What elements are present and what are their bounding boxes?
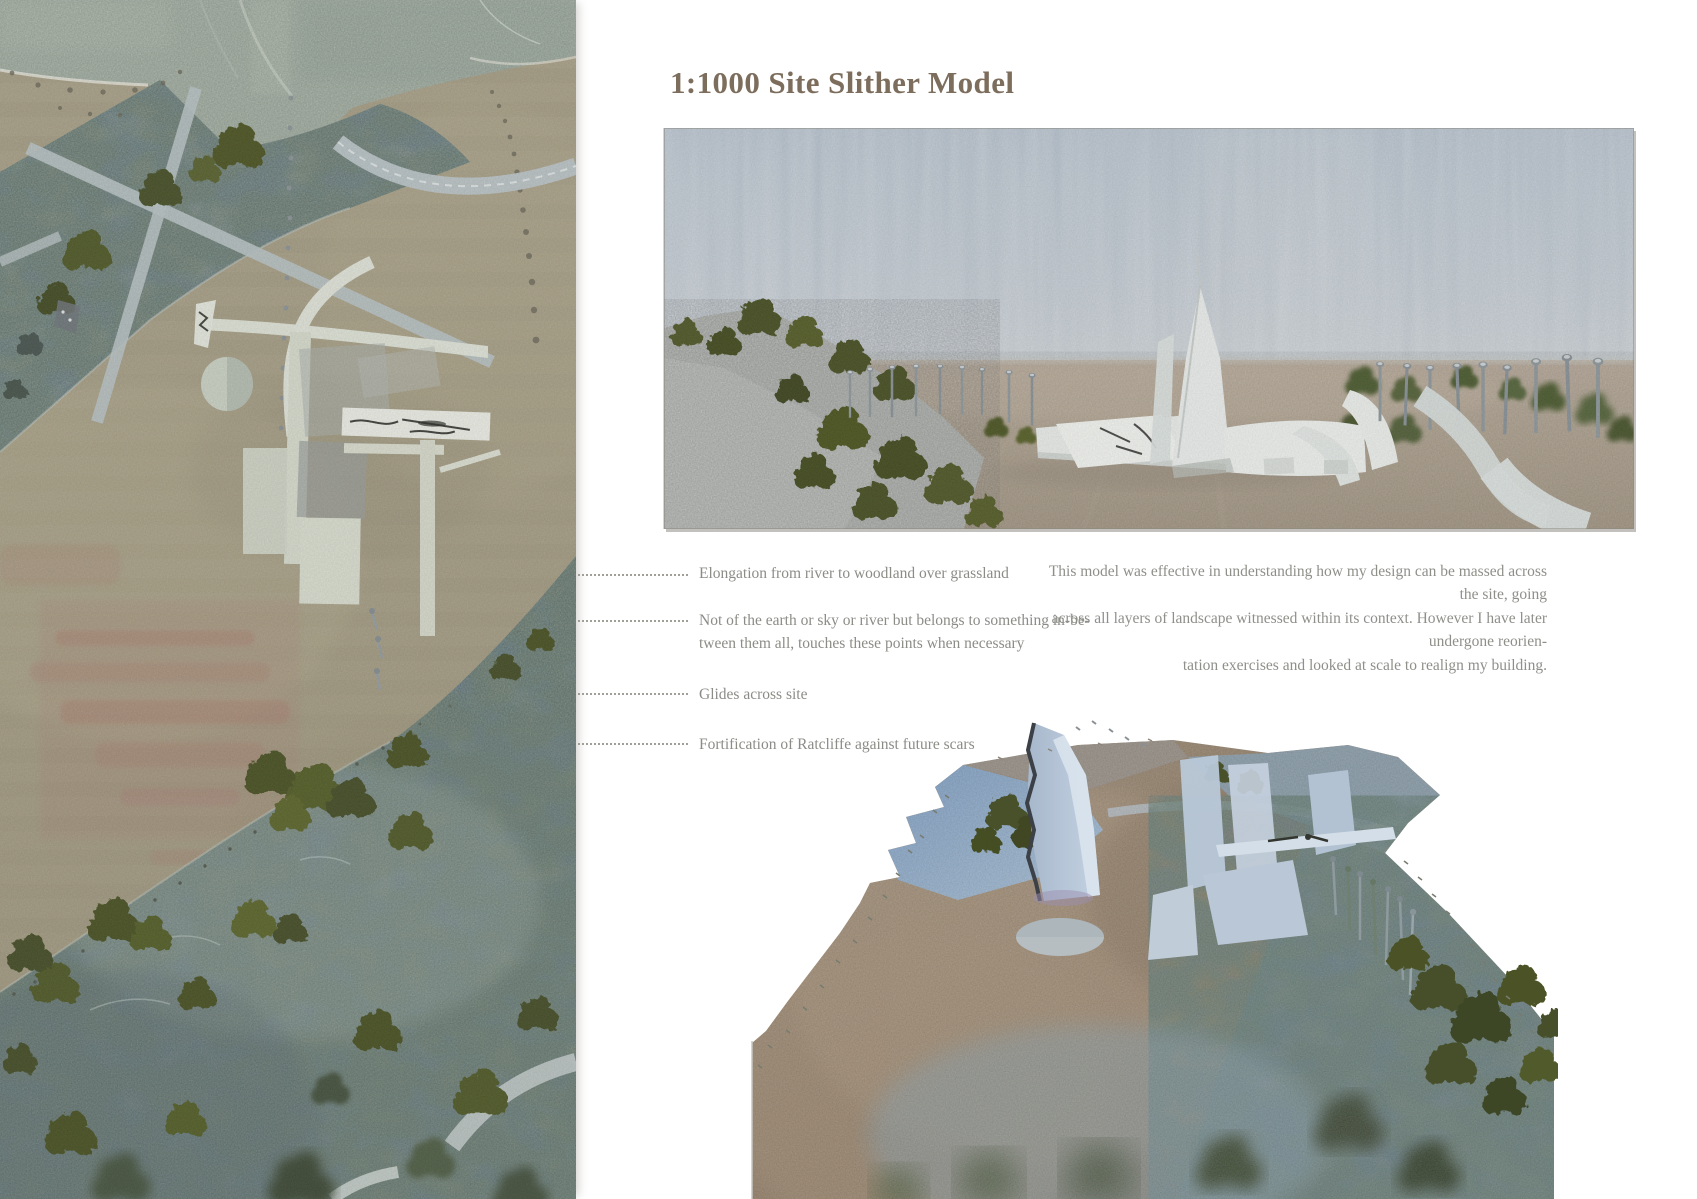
- model-eye-level-photo: [664, 128, 1634, 529]
- annotation-in-between: Not of the earth or sky or river but bel…: [699, 609, 1090, 655]
- leader-line: [578, 574, 688, 576]
- annotation-elongation: Elongation from river to woodland over g…: [699, 562, 1009, 585]
- site-plan-model-photo: [0, 0, 576, 1199]
- leader-line: [578, 693, 688, 695]
- annotation-fortification: Fortification of Ratcliffe against futur…: [699, 733, 975, 756]
- leader-line: [578, 620, 688, 622]
- page-title: 1:1000 Site Slither Model: [670, 65, 1014, 101]
- annotation-glides: Glides across site: [699, 683, 807, 706]
- model-description: This model was effective in understandin…: [1040, 560, 1547, 677]
- leader-line: [578, 743, 688, 745]
- portfolio-page: 1:1000 Site Slither Model: [0, 0, 1697, 1199]
- model-aerial-photo: [748, 645, 1558, 1199]
